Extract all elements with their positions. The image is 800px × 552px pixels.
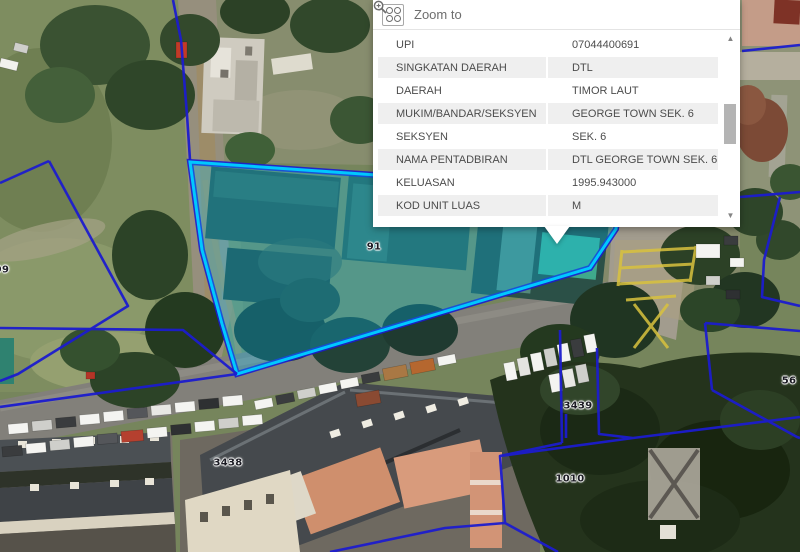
table-row: SINGKATAN DAERAH DTL — [378, 57, 718, 78]
field-value: 1995.943000 — [548, 172, 718, 193]
caret-up-icon[interactable]: ▲ — [723, 34, 738, 44]
grid-icon — [394, 15, 401, 22]
table-row: MUKIM/BANDAR/SEKSYEN GEORGE TOWN SEK. 6 — [378, 103, 718, 124]
field-value: DTL — [548, 57, 718, 78]
parcel-label: 3439 — [563, 401, 592, 412]
table-row: UPI 07044400691 — [378, 34, 718, 55]
field-name: SEKSYEN — [378, 126, 546, 147]
field-name: SINGKATAN DAERAH — [378, 57, 546, 78]
parcel-label: 91 — [367, 242, 382, 253]
scrollbar-thumb[interactable] — [724, 104, 736, 144]
field-value: SEK. 6 — [548, 126, 718, 147]
field-name: KOD UNIT LUAS — [378, 195, 546, 216]
popup-scrollbar[interactable]: ▲ ▼ — [723, 32, 738, 223]
map-viewport: 91 3438 3439 1010 56 99 Zoom to UPI 0704… — [0, 0, 800, 552]
grid-icon — [394, 7, 401, 14]
zoom-to-label: Zoom to — [414, 7, 462, 22]
field-value: 07044400691 — [548, 34, 718, 55]
magnifier-icon — [373, 0, 387, 14]
field-name: UPI — [378, 34, 546, 55]
field-name: MUKIM/BANDAR/SEKSYEN — [378, 103, 546, 124]
table-row: DAERAH TIMOR LAUT — [378, 80, 718, 101]
field-name: NAMA PENTADBIRAN — [378, 149, 546, 170]
popup-header: Zoom to — [373, 0, 740, 30]
parcel-label: 99 — [0, 265, 9, 276]
table-row: KELUASAN 1995.943000 — [378, 172, 718, 193]
parcel-label: 3438 — [213, 458, 242, 469]
zoom-to-action[interactable]: Zoom to — [414, 7, 462, 22]
field-name: KELUASAN — [378, 172, 546, 193]
attribute-table: UPI 07044400691 SINGKATAN DAERAH DTL DAE… — [378, 34, 718, 218]
field-value: GEORGE TOWN SEK. 6 — [548, 103, 718, 124]
field-name: DAERAH — [378, 80, 546, 101]
caret-down-icon[interactable]: ▼ — [723, 211, 738, 221]
table-row: KOD UNIT LUAS M — [378, 195, 718, 216]
table-row: NAMA PENTADBIRAN DTL GEORGE TOWN SEK. 6 — [378, 149, 718, 170]
field-value: TIMOR LAUT — [548, 80, 718, 101]
parcel-label: 56 — [782, 376, 797, 387]
field-value: DTL GEORGE TOWN SEK. 6 — [548, 149, 718, 170]
popup-callout-arrow — [544, 226, 570, 244]
parcel-label: 1010 — [555, 474, 584, 485]
table-row: SEKSYEN SEK. 6 — [378, 126, 718, 147]
feature-popup: Zoom to UPI 07044400691 SINGKATAN DAERAH… — [373, 0, 740, 227]
field-value: M — [548, 195, 718, 216]
grid-icon — [386, 15, 393, 22]
